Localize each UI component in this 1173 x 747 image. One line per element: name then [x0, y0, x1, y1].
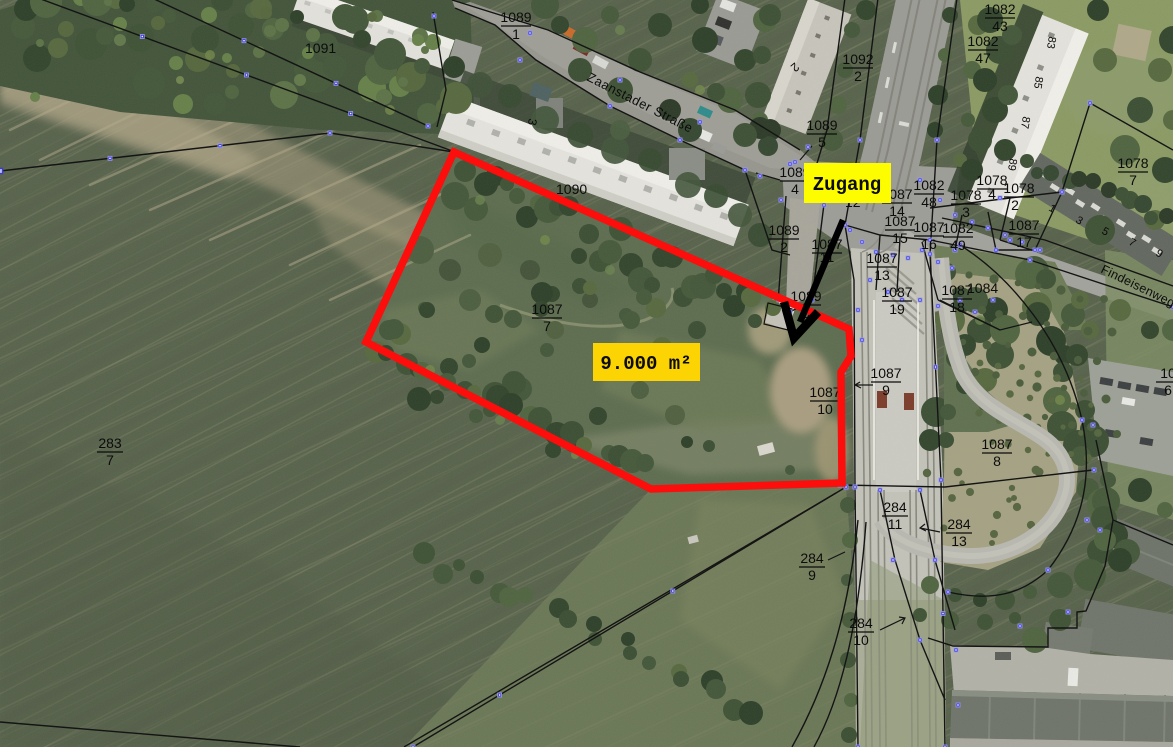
svg-text:10: 10	[853, 632, 869, 648]
svg-text:49: 49	[950, 237, 966, 253]
svg-text:2: 2	[854, 68, 862, 84]
svg-text:6: 6	[1164, 382, 1172, 398]
svg-text:19: 19	[889, 301, 905, 317]
svg-text:1: 1	[512, 26, 520, 42]
svg-text:1087: 1087	[531, 301, 562, 317]
svg-text:1087: 1087	[913, 219, 944, 235]
svg-text:283: 283	[98, 435, 122, 451]
svg-text:1087: 1087	[941, 282, 972, 298]
svg-text:284: 284	[849, 615, 873, 631]
svg-text:9: 9	[808, 567, 816, 583]
svg-text:1091: 1091	[305, 40, 336, 56]
svg-text:4: 4	[791, 181, 799, 197]
svg-text:1090: 1090	[556, 181, 587, 197]
svg-text:7: 7	[543, 318, 551, 334]
svg-text:1087: 1087	[981, 436, 1012, 452]
svg-text:7: 7	[1129, 172, 1137, 188]
svg-text:1087: 1087	[881, 284, 912, 300]
svg-text:1082: 1082	[942, 220, 973, 236]
svg-text:1078: 1078	[1117, 155, 1148, 171]
svg-text:11: 11	[888, 516, 903, 532]
svg-text:1082: 1082	[913, 177, 944, 193]
svg-text:2: 2	[1011, 197, 1019, 213]
svg-text:1089: 1089	[806, 117, 837, 133]
svg-text:9.000 m²: 9.000 m²	[600, 353, 691, 375]
svg-text:1082: 1082	[984, 1, 1015, 17]
svg-text:15: 15	[892, 230, 908, 246]
svg-text:8: 8	[993, 453, 1001, 469]
svg-text:1078: 1078	[1003, 180, 1034, 196]
svg-text:83: 83	[1044, 35, 1058, 49]
svg-text:2: 2	[780, 239, 788, 255]
svg-text:43: 43	[992, 18, 1008, 34]
svg-text:284: 284	[883, 499, 907, 515]
svg-text:13: 13	[874, 267, 890, 283]
svg-text:4: 4	[988, 186, 996, 202]
svg-text:1087: 1087	[1008, 217, 1039, 233]
svg-text:17: 17	[1016, 234, 1032, 250]
svg-text:1078: 1078	[950, 187, 981, 203]
svg-text:284: 284	[947, 516, 971, 532]
svg-text:89: 89	[1005, 157, 1019, 171]
svg-text:7: 7	[106, 452, 114, 468]
svg-text:1087: 1087	[884, 213, 915, 229]
svg-text:16: 16	[921, 236, 937, 252]
svg-text:85: 85	[1031, 75, 1045, 89]
svg-text:1087: 1087	[866, 250, 897, 266]
svg-text:1089: 1089	[768, 222, 799, 238]
svg-text:Zugang: Zugang	[813, 174, 881, 196]
svg-text:3: 3	[962, 204, 970, 220]
svg-text:10: 10	[817, 401, 833, 417]
svg-text:48: 48	[921, 194, 937, 210]
svg-text:1089: 1089	[500, 9, 531, 25]
svg-text:18: 18	[949, 299, 965, 315]
svg-text:1092: 1092	[842, 51, 873, 67]
svg-text:1087: 1087	[809, 384, 840, 400]
svg-text:47: 47	[975, 50, 991, 66]
svg-text:9: 9	[882, 382, 890, 398]
svg-text:10: 10	[1160, 365, 1173, 381]
svg-text:13: 13	[951, 533, 967, 549]
svg-text:284: 284	[800, 550, 824, 566]
svg-text:1087: 1087	[870, 365, 901, 381]
svg-text:87: 87	[1018, 115, 1032, 129]
svg-text:1082: 1082	[967, 33, 998, 49]
svg-text:5: 5	[818, 134, 826, 150]
